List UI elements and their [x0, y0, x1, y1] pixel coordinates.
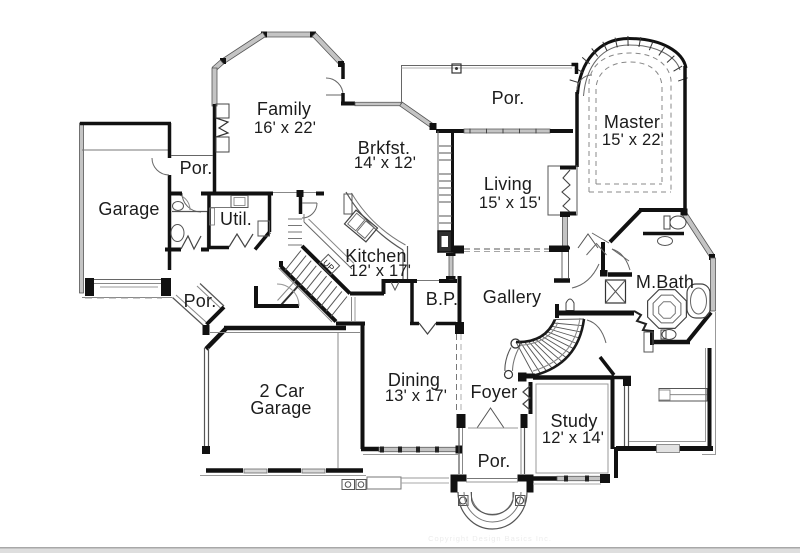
- svg-text:16' x 22': 16' x 22': [254, 119, 316, 137]
- svg-text:12' x 17': 12' x 17': [349, 262, 411, 280]
- svg-text:Por.: Por.: [492, 88, 525, 108]
- svg-text:Living: Living: [484, 174, 532, 194]
- svg-text:Garage: Garage: [250, 398, 311, 418]
- svg-text:Util.: Util.: [220, 209, 252, 229]
- svg-text:Por.: Por.: [184, 291, 217, 311]
- svg-text:Foyer: Foyer: [470, 382, 517, 402]
- svg-text:Por.: Por.: [180, 158, 213, 178]
- svg-text:13' x 17': 13' x 17': [385, 387, 447, 405]
- svg-text:Por.: Por.: [478, 451, 511, 471]
- svg-text:15' x 15': 15' x 15': [479, 194, 541, 212]
- svg-text:B.P.: B.P.: [426, 289, 459, 309]
- svg-text:Master: Master: [604, 112, 660, 132]
- svg-text:Family: Family: [257, 99, 311, 119]
- svg-text:15' x 22': 15' x 22': [602, 131, 664, 149]
- svg-text:12' x 14': 12' x 14': [542, 429, 604, 447]
- svg-text:Study: Study: [550, 411, 597, 431]
- svg-text:Gallery: Gallery: [483, 287, 541, 307]
- svg-text:Garage: Garage: [98, 199, 159, 219]
- svg-text:M.Bath: M.Bath: [636, 272, 694, 292]
- svg-text:14' x 12': 14' x 12': [354, 154, 416, 172]
- svg-text:Copyright Design Basics Inc.: Copyright Design Basics Inc.: [428, 534, 552, 543]
